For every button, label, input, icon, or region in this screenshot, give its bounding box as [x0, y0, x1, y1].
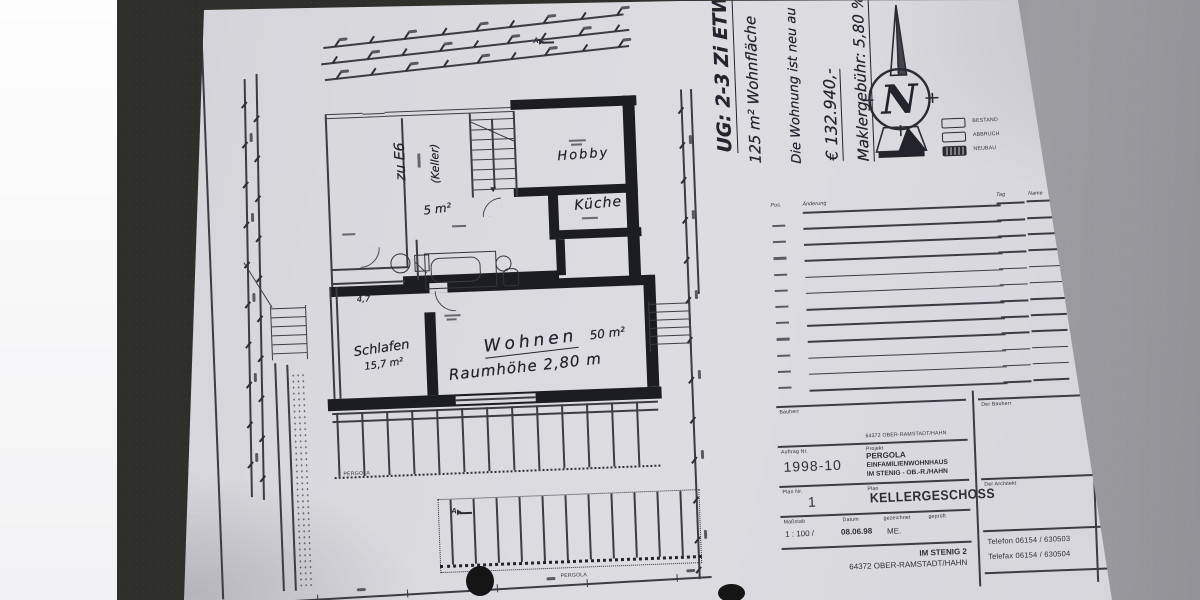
- revision-rule-name: [1030, 297, 1066, 300]
- pergola-post: [611, 402, 615, 466]
- revision-pos-mark: [776, 322, 789, 325]
- pergola-post: [336, 413, 340, 477]
- revision-rule-day: [1000, 299, 1028, 302]
- revision-rule-change: [806, 285, 1004, 294]
- legend-swatch-abbruch: [942, 132, 966, 143]
- der-architekt-label: Der Architekt: [984, 480, 1016, 487]
- wall: [325, 115, 334, 287]
- revision-rule-day: [998, 235, 1026, 238]
- title-block: Bauherr 64372 OBER-RAMSTADT/HAHN Auftrag…: [776, 385, 1115, 594]
- punched-hole: [466, 566, 494, 596]
- exterior-stair-left: [270, 305, 308, 360]
- wall-new: [424, 312, 438, 395]
- datum-value: 08.06.98: [841, 526, 872, 536]
- revision-rule-change: [805, 269, 1003, 278]
- auftrag-label: Auftrag Nr.: [781, 448, 808, 455]
- drawing-content: zu E6 (Keller) Hobby Küche 5 m² Schlafen…: [0, 0, 1200, 600]
- revision-pos-mark: [772, 225, 785, 228]
- ground-number: [357, 588, 366, 592]
- revision-pos-mark: [775, 306, 788, 309]
- auftrag-nr: 1998-10: [783, 457, 842, 475]
- massstab-label: Maßstab: [784, 518, 806, 525]
- revision-rule-change: [803, 220, 1001, 229]
- north-arrow-icon: N: [851, 0, 947, 163]
- illegible-micro-label: [444, 314, 460, 317]
- revision-rule-name: [1029, 264, 1065, 267]
- stair-tread: [649, 302, 689, 305]
- pergola-lower-label: PERGOLA: [560, 571, 587, 578]
- revision-pos-mark: [774, 273, 787, 276]
- north-letter: N: [878, 75, 920, 124]
- stair-tread: [273, 352, 307, 355]
- wall-new: [548, 194, 560, 239]
- door-swing: [360, 247, 381, 268]
- stair-tread: [272, 334, 306, 337]
- equipment-box: [414, 254, 430, 272]
- pergola-post: [411, 410, 415, 474]
- section-arrowhead: [539, 39, 544, 45]
- room-label-wohnen: Wohnen 50 m²: [483, 320, 626, 356]
- revision-rule-change: [806, 301, 1004, 310]
- note-raumhoehe: Raumhöhe 2,80 m: [448, 349, 603, 383]
- projekt-ort: IM STENIG - OB.-R./HAHN: [867, 468, 948, 479]
- illegible-micro-label: [417, 154, 421, 168]
- ramp-line: [243, 262, 272, 308]
- revision-rule-day: [1000, 283, 1028, 286]
- revision-rule-change: [808, 350, 1006, 359]
- revision-pos-mark: [778, 370, 791, 373]
- pergola-post: [536, 405, 540, 469]
- pergola-post: [636, 401, 640, 465]
- door-swing: [435, 290, 457, 312]
- pergola-post: [486, 407, 490, 471]
- illegible-micro-label: [571, 143, 582, 145]
- stair-arrowhead: [490, 187, 496, 192]
- revision-rule-day: [1003, 380, 1031, 383]
- massstab-value: 1 : 100 /: [785, 529, 814, 539]
- illegible-micro-label: [447, 318, 457, 320]
- revision-pos-mark: [773, 257, 786, 260]
- pergola-post: [361, 412, 365, 476]
- room-label-zu-e6: zu E6: [392, 142, 410, 181]
- pergola-post: [561, 404, 565, 468]
- door-swing: [482, 197, 502, 217]
- stair-tread: [271, 316, 305, 319]
- dim-note-47: 4,7: [357, 295, 371, 306]
- revision-rule-name: [1031, 329, 1067, 332]
- room-label-keller: (Keller): [428, 144, 443, 184]
- pergola-upper: PERGOLA: [332, 397, 661, 495]
- bauherr-label: Bauherr: [779, 408, 799, 415]
- ground-number: [686, 569, 695, 573]
- stair-tread: [271, 307, 305, 310]
- plan-nr: 1: [808, 494, 816, 510]
- revision-pos-mark: [777, 354, 790, 357]
- revision-rule-day: [997, 218, 1025, 221]
- wall: [329, 287, 335, 399]
- datum-label: Datum: [842, 516, 858, 523]
- bathtub-inner: [430, 256, 481, 283]
- legend-label-neubau: NEUBAU: [973, 144, 996, 151]
- plan-nr-label: Plan Nr.: [782, 488, 802, 495]
- legend-label-bestand: BESTAND: [972, 116, 998, 123]
- legend: BESTAND ABBRUCH NEUBAU: [941, 114, 1053, 166]
- gezeichnet-value: ME.: [887, 526, 902, 536]
- revision-rule-name: [1028, 248, 1064, 251]
- stair-tread: [650, 326, 690, 329]
- revision-rule-change: [804, 236, 1002, 245]
- revision-rule-change: [805, 253, 1003, 262]
- revision-rule-day: [998, 251, 1026, 254]
- photo-edge-strip: [0, 0, 117, 600]
- revision-rows: [768, 189, 1077, 400]
- punched-hole: [718, 584, 745, 600]
- revision-pos-mark: [778, 386, 791, 389]
- revision-rule-name: [1031, 313, 1067, 316]
- firm-address-1: IM STENIG 2: [919, 547, 967, 558]
- toilet: [503, 268, 520, 287]
- revision-rule-day: [1002, 332, 1030, 335]
- revision-table: Pos. Änderung Tag Name: [768, 189, 1077, 400]
- revision-rule-name: [1033, 362, 1069, 365]
- projekt-ort-small: 64372 OBER-RAMSTADT/HAHN: [865, 430, 946, 439]
- telefon: Telefon 06154 / 630503: [987, 535, 1070, 547]
- stair-tread: [272, 325, 306, 328]
- area-label-schlafen: 15,7 m²: [364, 356, 404, 372]
- revision-rule-name: [1028, 232, 1064, 235]
- pergola-upper-label: PERGOLA: [343, 470, 370, 477]
- revision-rule-change: [808, 334, 1006, 343]
- revision-rule-name: [1030, 281, 1066, 284]
- stair-tread: [272, 343, 306, 346]
- photo-of-floor-plan: zu E6 (Keller) Hobby Küche 5 m² Schlafen…: [0, 0, 1200, 600]
- illegible-micro-label: [569, 139, 586, 142]
- revision-pos-mark: [777, 338, 790, 341]
- telefax: Telefax 06154 / 630504: [988, 550, 1071, 562]
- revision-rule-day: [1003, 364, 1031, 367]
- illegible-micro-label: [452, 225, 466, 228]
- legend-label-abbruch: ABBRUCH: [973, 130, 1000, 137]
- pergola-post: [511, 406, 515, 470]
- legend-swatch-bestand: [941, 118, 965, 129]
- pergola-post: [461, 408, 465, 472]
- der-bauherr-label: Der Bauherr: [981, 400, 1012, 407]
- revision-rule-day: [1001, 316, 1029, 319]
- gezeichnet-label: gezeichnet: [883, 514, 910, 521]
- revision-rule-change: [807, 317, 1005, 326]
- drawing-sheet: zu E6 (Keller) Hobby Küche 5 m² Schlafen…: [0, 0, 1200, 600]
- revision-rule-day: [1002, 348, 1030, 351]
- site-wall: [274, 363, 284, 591]
- stair-tread: [649, 310, 689, 313]
- wall-new: [510, 95, 636, 110]
- pergola-post: [436, 409, 440, 473]
- exterior-stair-right: [648, 300, 692, 352]
- stair-tread: [650, 318, 690, 321]
- room-label-hobby: Hobby: [557, 145, 610, 164]
- firm-address-2: 64372 OBER-RAMSTADT/HAHN: [849, 558, 967, 572]
- revision-pos-mark: [775, 289, 788, 292]
- wall: [401, 118, 409, 268]
- area-label-5m2: 5 m²: [423, 200, 452, 217]
- pergola-post: [386, 411, 390, 475]
- stair-tread: [650, 334, 690, 337]
- revision-rule-name: [1032, 345, 1068, 348]
- wohnen-area-text: 50 m²: [589, 324, 626, 342]
- projekt-name: PERGOLA: [866, 450, 906, 461]
- room-label-kueche: Küche: [574, 194, 623, 214]
- pergola-post: [586, 403, 590, 467]
- ground-number: [546, 577, 555, 581]
- note-line4: € 132.940,-: [819, 68, 844, 161]
- legend-swatch-neubau: [942, 146, 966, 157]
- revision-rule-day: [999, 267, 1027, 270]
- boiler: [390, 253, 411, 274]
- illegible-micro-label: [342, 233, 355, 235]
- interior-staircase: [471, 114, 516, 198]
- revision-pos-mark: [773, 241, 786, 244]
- revision-rule-change: [809, 366, 1007, 375]
- geprueft-label: geprüft: [928, 513, 946, 520]
- revision-rule-name: [1033, 378, 1069, 381]
- revision-rule-name: [1027, 216, 1063, 219]
- illegible-micro-label: [582, 217, 598, 220]
- stair-tread: [651, 342, 691, 345]
- wall: [335, 287, 341, 399]
